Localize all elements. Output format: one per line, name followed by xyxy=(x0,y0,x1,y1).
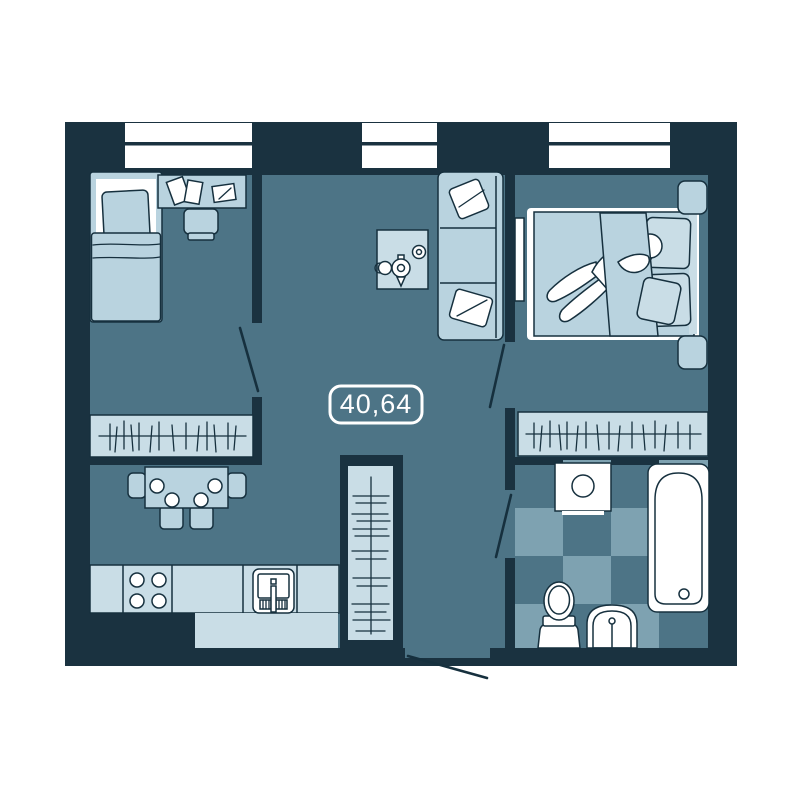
area-label: 40,64 xyxy=(340,389,413,419)
floor-entrance-gap xyxy=(405,648,490,658)
window-icon-2 xyxy=(362,123,437,168)
door-opening-bedroom-right xyxy=(505,342,515,408)
washbasin-icon xyxy=(587,605,637,648)
dining-chair-icon xyxy=(190,506,213,529)
kitchen-sink-icon xyxy=(253,569,294,613)
dining-chair-icon xyxy=(227,473,246,498)
bathtub-icon xyxy=(648,464,709,612)
floor-plan-page: 40,64 xyxy=(0,0,800,800)
coffee-table-icon xyxy=(375,230,428,289)
cup-icon xyxy=(413,246,426,259)
paper-icon xyxy=(212,184,236,203)
single-bed-icon xyxy=(90,172,162,322)
faucet xyxy=(609,618,615,624)
hall-wardrobe-icon xyxy=(340,455,403,648)
faucet xyxy=(271,586,276,612)
washing-machine-icon xyxy=(555,463,611,515)
plate-icon xyxy=(194,493,208,507)
blanket xyxy=(92,233,161,321)
desk-icon xyxy=(158,175,246,208)
nightstand-icon xyxy=(678,336,707,369)
dining-chair-icon xyxy=(160,506,183,529)
plate-icon xyxy=(208,479,222,493)
plate-icon xyxy=(150,479,164,493)
area-badge: 40,64 xyxy=(330,386,422,423)
dining-chair-icon xyxy=(128,473,146,498)
sofa-icon xyxy=(438,172,503,340)
tv-icon xyxy=(515,218,524,301)
window-icon-1 xyxy=(125,123,252,168)
wardrobe-hangers-icon xyxy=(518,412,708,456)
counter-extension xyxy=(195,613,338,648)
book-icon xyxy=(184,180,203,204)
wardrobe-hangers-icon xyxy=(90,415,253,457)
desk-chair-icon xyxy=(184,209,218,240)
wall-jut-kitchen xyxy=(65,613,195,648)
double-bed-icon xyxy=(527,208,699,340)
window-icon-3 xyxy=(549,123,670,168)
pillow-icon xyxy=(636,277,682,326)
plate-icon xyxy=(165,493,179,507)
floor-plan: 40,64 xyxy=(0,0,800,800)
nightstand-icon xyxy=(678,181,707,214)
windows xyxy=(125,123,670,168)
